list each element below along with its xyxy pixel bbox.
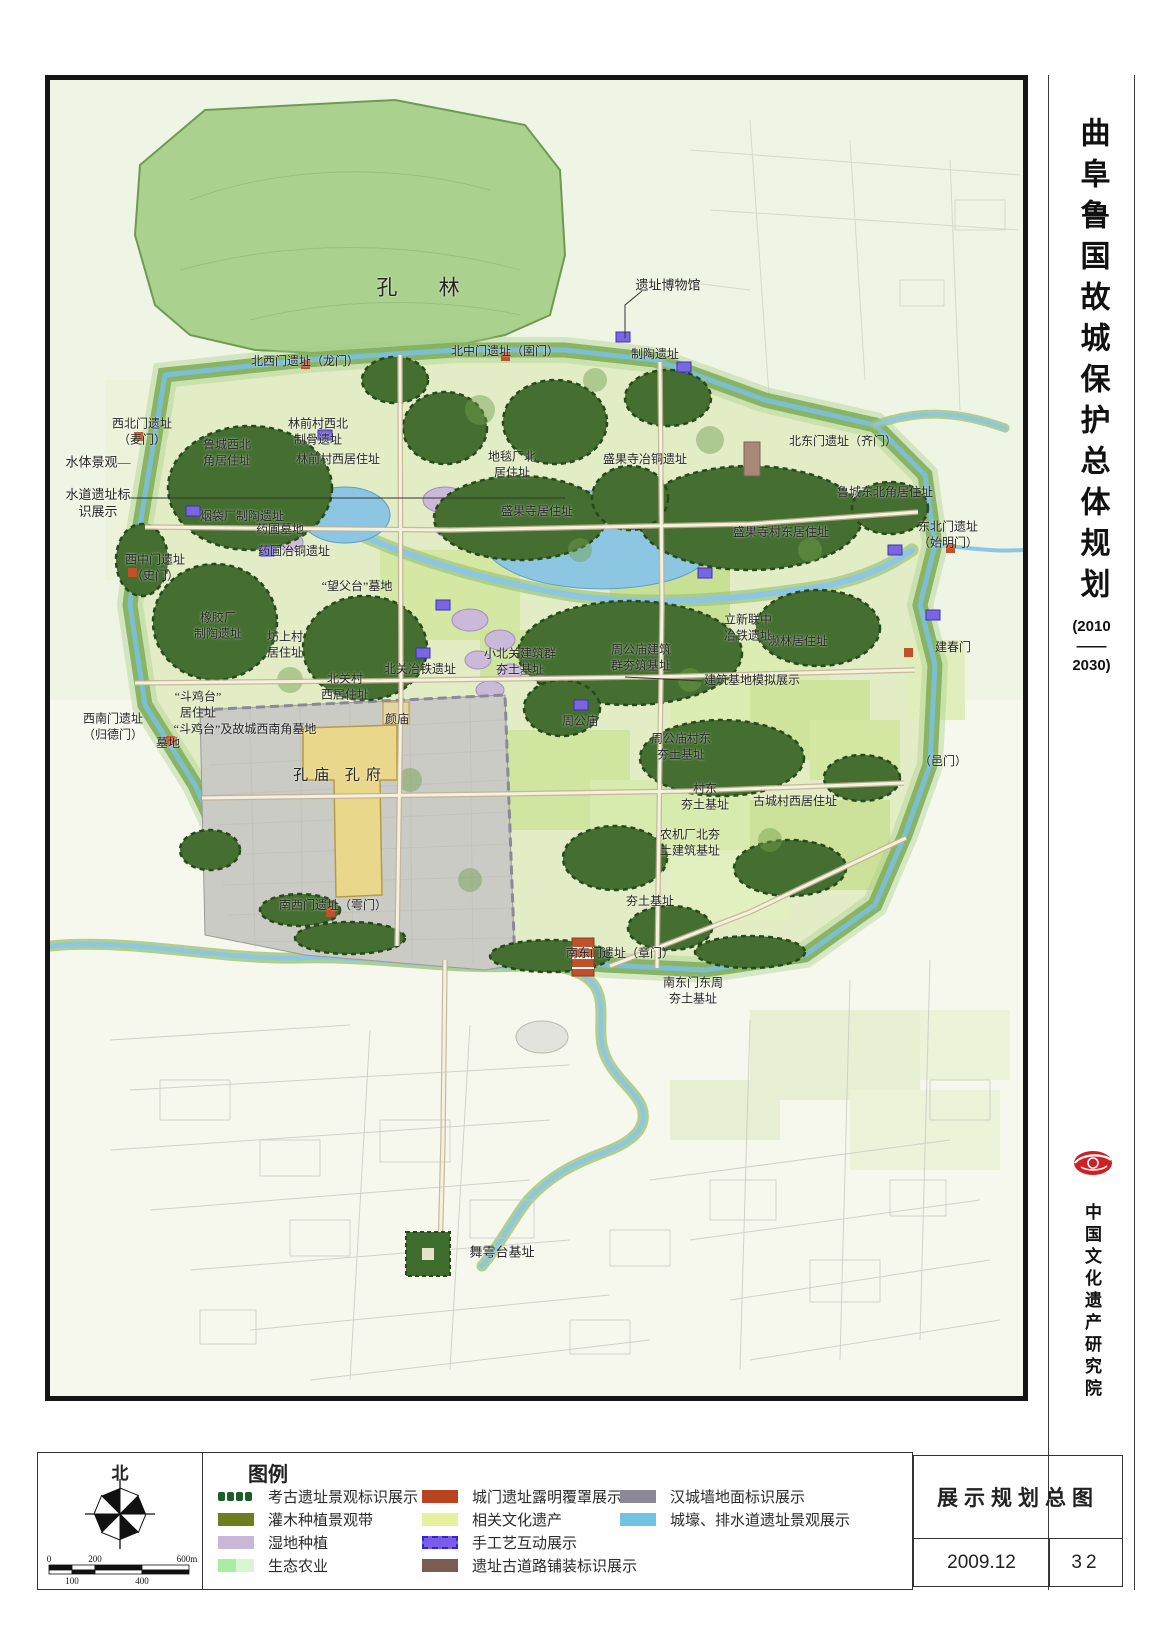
yan-temple-block (383, 702, 409, 724)
compass-scale-box: 北 0 200 600m 100 400 (37, 1452, 203, 1590)
bridge-northeast (744, 442, 760, 476)
legend-label: 考古遗址景观标识展示 (268, 1486, 418, 1507)
sheet-title: 曲阜鲁国故城保护总体规划 (1070, 117, 1114, 609)
legend-column-1: 考古遗址景观标识展示灌木种植景观带湿地种植生态农业 (218, 1488, 418, 1573)
compass-rose-icon (85, 1479, 155, 1549)
legend-item: 湿地种植 (218, 1534, 418, 1550)
legend-label: 遗址古道路铺装标识展示 (472, 1555, 637, 1576)
bridge-south (572, 938, 594, 976)
legend-swatch (422, 1513, 458, 1526)
legend-item: 生态农业 (218, 1557, 418, 1573)
legend-swatch (620, 1490, 656, 1503)
scale-bar: 0 200 600m 100 400 (44, 1553, 198, 1587)
legend-item: 城门遗址露明覆罩展示 (422, 1488, 637, 1504)
legend-label: 汉城墙地面标识展示 (670, 1486, 805, 1507)
stadium (516, 1021, 568, 1053)
kong-lin-area (135, 100, 565, 355)
legend-swatch (422, 1536, 458, 1549)
wuyutai-site (406, 1232, 450, 1276)
legend-label: 相关文化遗产 (472, 1509, 562, 1530)
legend-item: 汉城墙地面标识展示 (620, 1488, 850, 1504)
legend-swatch (218, 1559, 254, 1572)
titleblock: 展示规划总图 2009.12 32 (913, 1455, 1123, 1587)
scale-200: 200 (88, 1554, 102, 1564)
plan-sheet: 孔 林遗址博物馆北中门遗址（圉门）北西门遗址（龙门）制陶遗址北东门遗址（齐门）西… (0, 0, 1157, 1637)
legend-swatch (218, 1490, 254, 1503)
legend-item: 城壕、排水道遗址景观展示 (620, 1511, 850, 1527)
map-canvas (50, 80, 1023, 1396)
legend: 图例 考古遗址景观标识展示灌木种植景观带湿地种植生态农业 城门遗址露明覆罩展示相… (203, 1452, 913, 1590)
legend-label: 城壕、排水道遗址景观展示 (670, 1509, 850, 1530)
legend-label: 湿地种植 (268, 1532, 328, 1553)
legend-label: 手工艺互动展示 (472, 1532, 577, 1553)
scale-600: 600m (177, 1554, 198, 1564)
scale-0: 0 (47, 1554, 52, 1564)
plan-period: (2010 —— 2030) (1049, 617, 1134, 676)
scale-400: 400 (135, 1576, 149, 1586)
title-sidebar: 曲阜鲁国故城保护总体规划 (2010 —— 2030) 中国文化遗产研究院 (1048, 75, 1135, 1590)
legend-item: 相关文化遗产 (422, 1511, 637, 1527)
legend-label: 生态农业 (268, 1555, 328, 1576)
legend-swatch (620, 1513, 656, 1526)
legend-swatch (422, 1490, 458, 1503)
legend-item: 遗址古道路铺装标识展示 (422, 1557, 637, 1573)
map-frame: 孔 林遗址博物馆北中门遗址（圉门）北西门遗址（龙门）制陶遗址北东门遗址（齐门）西… (45, 75, 1028, 1401)
legend-title: 图例 (248, 1458, 288, 1487)
drawing-date: 2009.12 (914, 1539, 1050, 1586)
drawing-title: 展示规划总图 (914, 1456, 1122, 1539)
legend-item: 灌木种植景观带 (218, 1511, 418, 1527)
legend-item: 手工艺互动展示 (422, 1534, 637, 1550)
legend-swatch (218, 1536, 254, 1549)
page-number: 32 (1050, 1539, 1122, 1586)
cach-logo-icon (1071, 1147, 1113, 1184)
legend-swatch (218, 1513, 254, 1526)
legend-swatch (422, 1559, 458, 1572)
legend-column-2: 城门遗址露明覆罩展示相关文化遗产手工艺互动展示遗址古道路铺装标识展示 (422, 1488, 637, 1573)
organization-name: 中国文化遗产研究院 (1079, 1203, 1104, 1401)
scale-100: 100 (65, 1576, 79, 1586)
legend-column-3: 汉城墙地面标识展示城壕、排水道遗址景观展示 (620, 1488, 850, 1527)
legend-label: 灌木种植景观带 (268, 1509, 373, 1530)
legend-label: 城门遗址露明覆罩展示 (472, 1486, 622, 1507)
legend-item: 考古遗址景观标识展示 (218, 1488, 418, 1504)
